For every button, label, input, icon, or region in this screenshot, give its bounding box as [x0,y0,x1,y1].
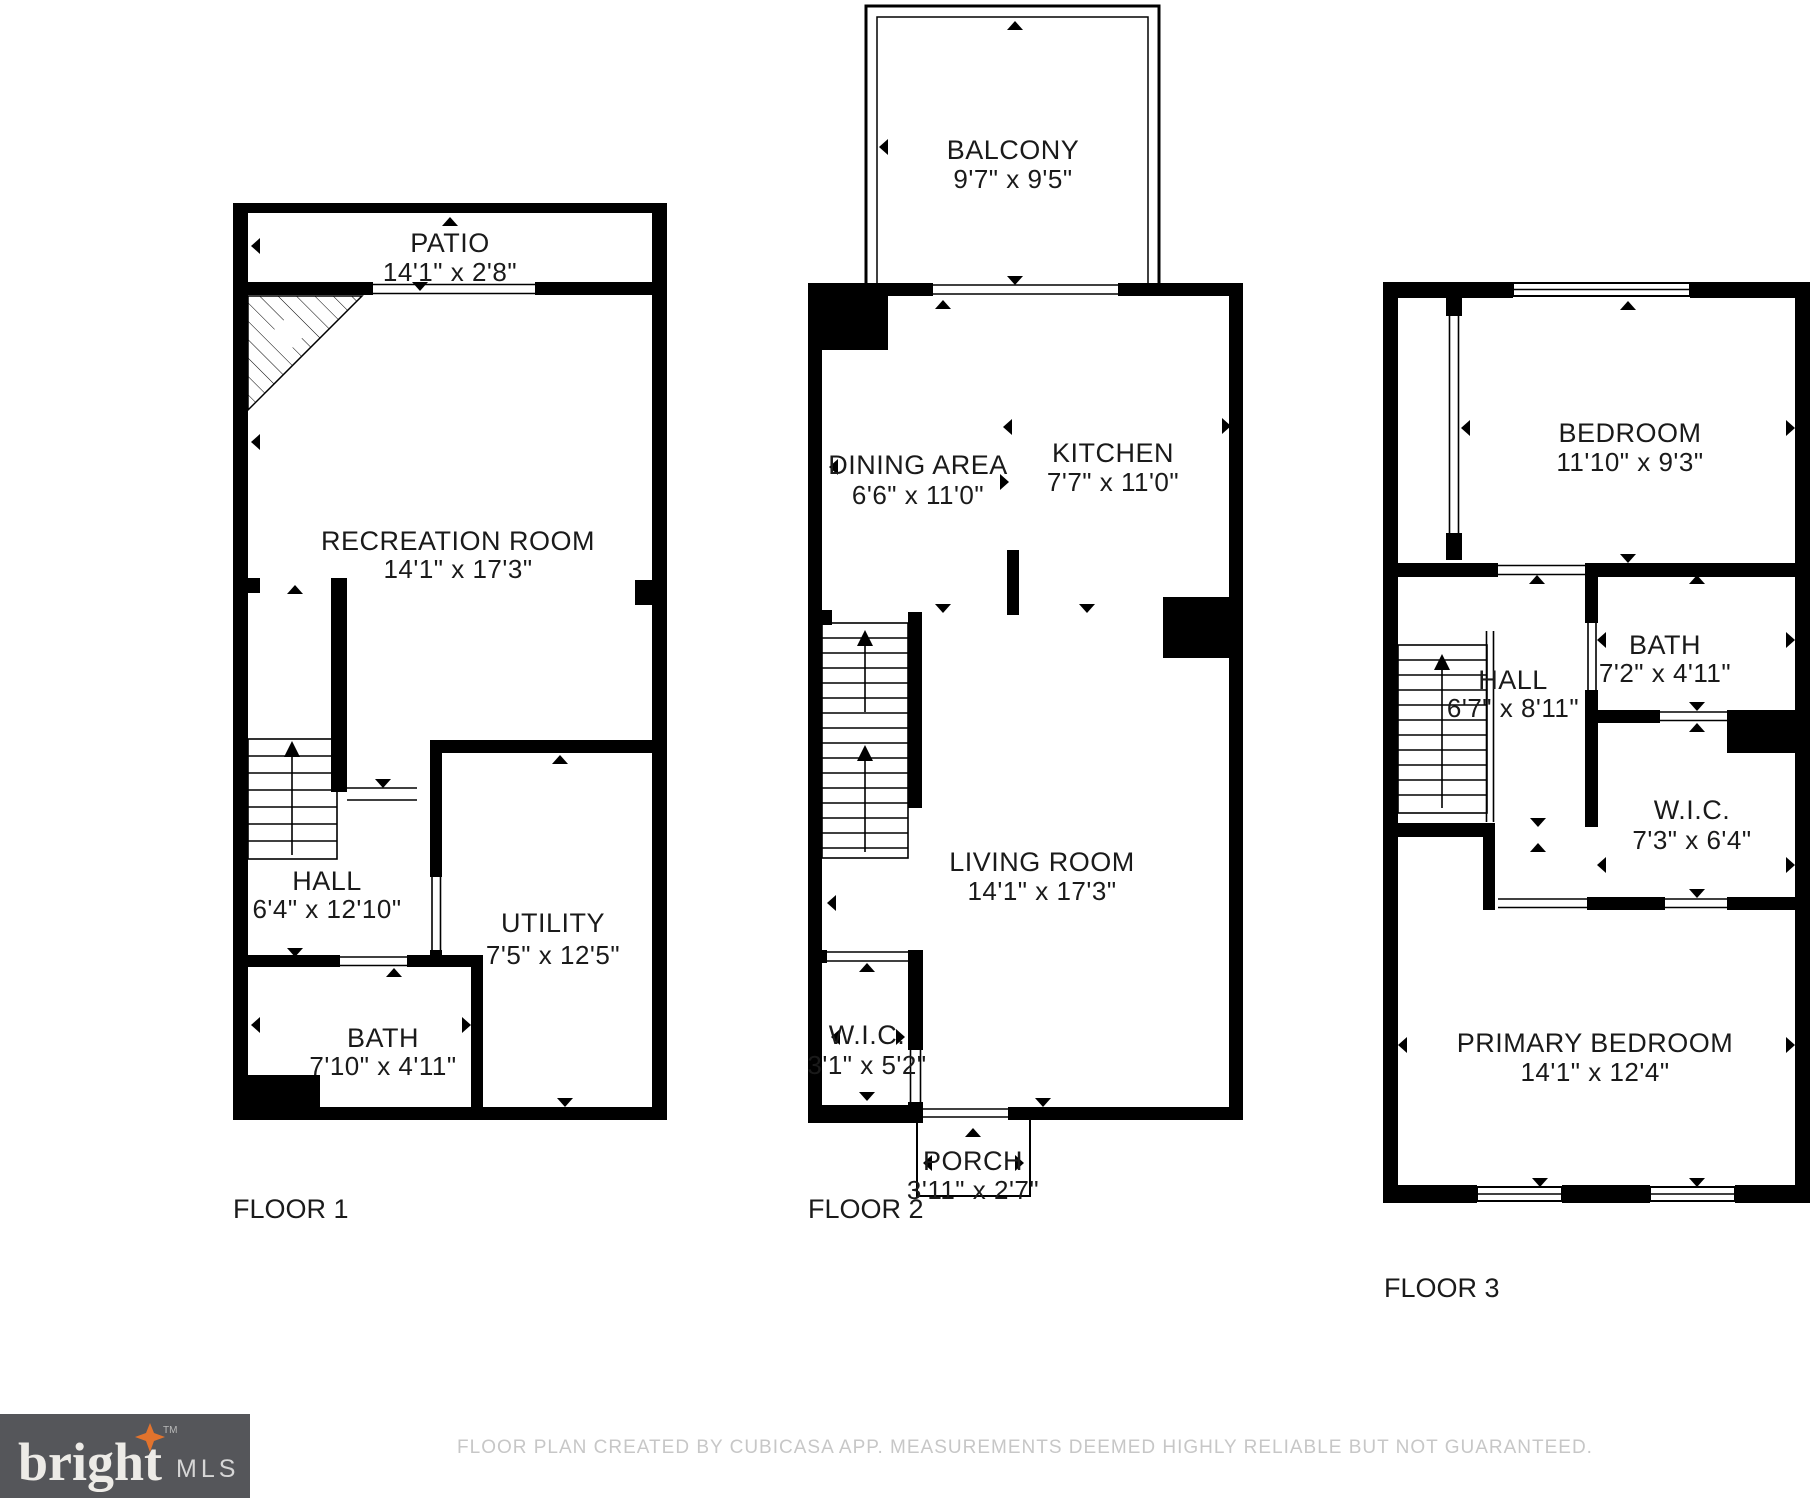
floor-plan-canvas: PATIO 14'1" x 2'8" RECREATION ROOM 14'1"… [0,0,1816,1498]
room-dims-dining-area: 6'6" x 11'0" [852,480,984,510]
footer-disclaimer: FLOOR PLAN CREATED BY CUBICASA APP. MEAS… [457,1437,1593,1458]
floor-3-door-openings [1498,566,1727,908]
room-label-recreation-room: RECREATION ROOM [321,526,595,556]
room-label-bath-f1: BATH [347,1023,419,1053]
stair-direction-arrow-head [1434,654,1450,670]
floor-2-label: FLOOR 2 [808,1194,924,1224]
room-label-hall-f1: HALL [292,866,362,896]
room-dims-patio: 14'1" x 2'8" [383,257,517,287]
room-label-bath-f3: BATH [1629,630,1701,660]
floor-3-label: FLOOR 3 [1384,1273,1500,1303]
room-label-porch: PORCH [923,1146,1023,1176]
floor-2-walls [808,283,1243,1123]
floor-2-door-openings [827,285,1118,1117]
room-label-bedroom: BEDROOM [1558,418,1701,448]
room-label-balcony: BALCONY [947,135,1080,165]
room-label-wic-f2: W.I.C. [829,1020,906,1050]
stair-arrow-lower-head [857,745,873,761]
floor-1-label: FLOOR 1 [233,1194,349,1224]
room-dims-wic-f2: 3'1" x 5'2" [807,1050,926,1080]
footer: bright TM MLS FLOOR PLAN CREATED BY CUBI… [0,1414,1593,1498]
room-dims-utility: 7'5" x 12'5" [486,940,620,970]
stairwell-railing [1450,298,1459,560]
room-dims-balcony: 9'7" x 9'5" [953,164,1072,194]
floor-3-plan: BEDROOM 11'10" x 9'3" HALL 6'7" x 8'11" … [1383,282,1810,1303]
hatched-corner-paving [248,296,362,410]
floor-plan-page: PATIO 14'1" x 2'8" RECREATION ROOM 14'1"… [0,0,1816,1498]
brightmls-logo-wordmark: bright [18,1432,162,1492]
floor-1-stairs [248,739,337,859]
room-label-wic-f3: W.I.C. [1654,795,1731,825]
floor-2-stairs [822,623,908,858]
room-dims-bedroom: 11'10" x 9'3" [1556,447,1703,477]
room-dims-kitchen: 7'7" x 11'0" [1047,467,1179,497]
stair-direction-arrow-head [284,741,300,757]
room-dims-recreation-room: 14'1" x 17'3" [383,554,532,584]
room-dims-primary-bedroom: 14'1" x 12'4" [1520,1057,1669,1087]
brightmls-logo-mls: MLS [176,1455,239,1483]
room-dims-hall-f3: 6'7" x 8'11" [1447,693,1579,723]
floor-2-plan: BALCONY 9'7" x 9'5" DINING AREA 6'6" x 1… [807,6,1243,1224]
room-dims-wic-f3: 7'3" x 6'4" [1632,825,1751,855]
room-dims-living-room: 14'1" x 17'3" [967,876,1116,906]
room-label-living-room: LIVING ROOM [949,847,1135,877]
room-dims-bath-f1: 7'10" x 4'11" [309,1051,456,1081]
room-label-kitchen: KITCHEN [1052,438,1174,468]
room-dims-porch: 3'11" x 2'7" [907,1175,1039,1205]
floor-3-stairs [1398,631,1494,822]
room-label-primary-bedroom: PRIMARY BEDROOM [1457,1028,1734,1058]
brightmls-logo-trademark: TM [163,1425,177,1436]
room-dims-bath-f3: 7'2" x 4'11" [1599,658,1731,688]
room-dims-hall-f1: 6'4" x 12'10" [252,894,401,924]
room-label-patio: PATIO [410,228,490,258]
room-label-hall-f3: HALL [1478,665,1548,695]
room-label-utility: UTILITY [501,908,605,938]
floor-1-plan: PATIO 14'1" x 2'8" RECREATION ROOM 14'1"… [233,203,667,1224]
room-label-dining-area: DINING AREA [828,450,1008,480]
